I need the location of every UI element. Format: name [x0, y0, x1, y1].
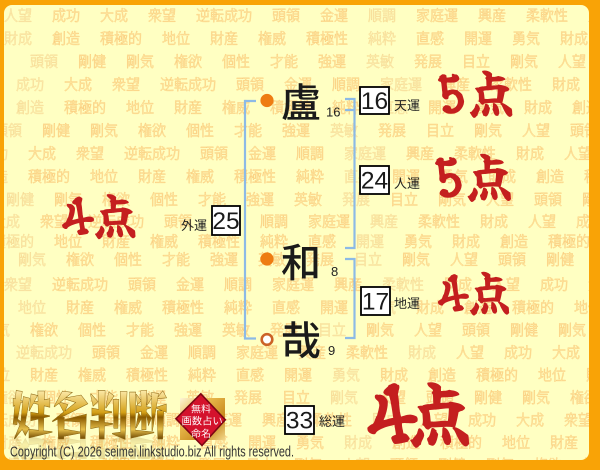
svg-text:Copyright (C) 2026 seimei.link: Copyright (C) 2026 seimei.linkstudio.biz… — [10, 445, 294, 461]
svg-text:9: 9 — [328, 343, 335, 358]
svg-text:16: 16 — [326, 105, 340, 120]
svg-text:25: 25 — [212, 208, 239, 235]
svg-text:8: 8 — [331, 264, 338, 279]
svg-text:17: 17 — [362, 289, 389, 316]
svg-text:16: 16 — [361, 88, 388, 115]
svg-text:24: 24 — [361, 168, 388, 195]
svg-text:33: 33 — [286, 408, 313, 435]
